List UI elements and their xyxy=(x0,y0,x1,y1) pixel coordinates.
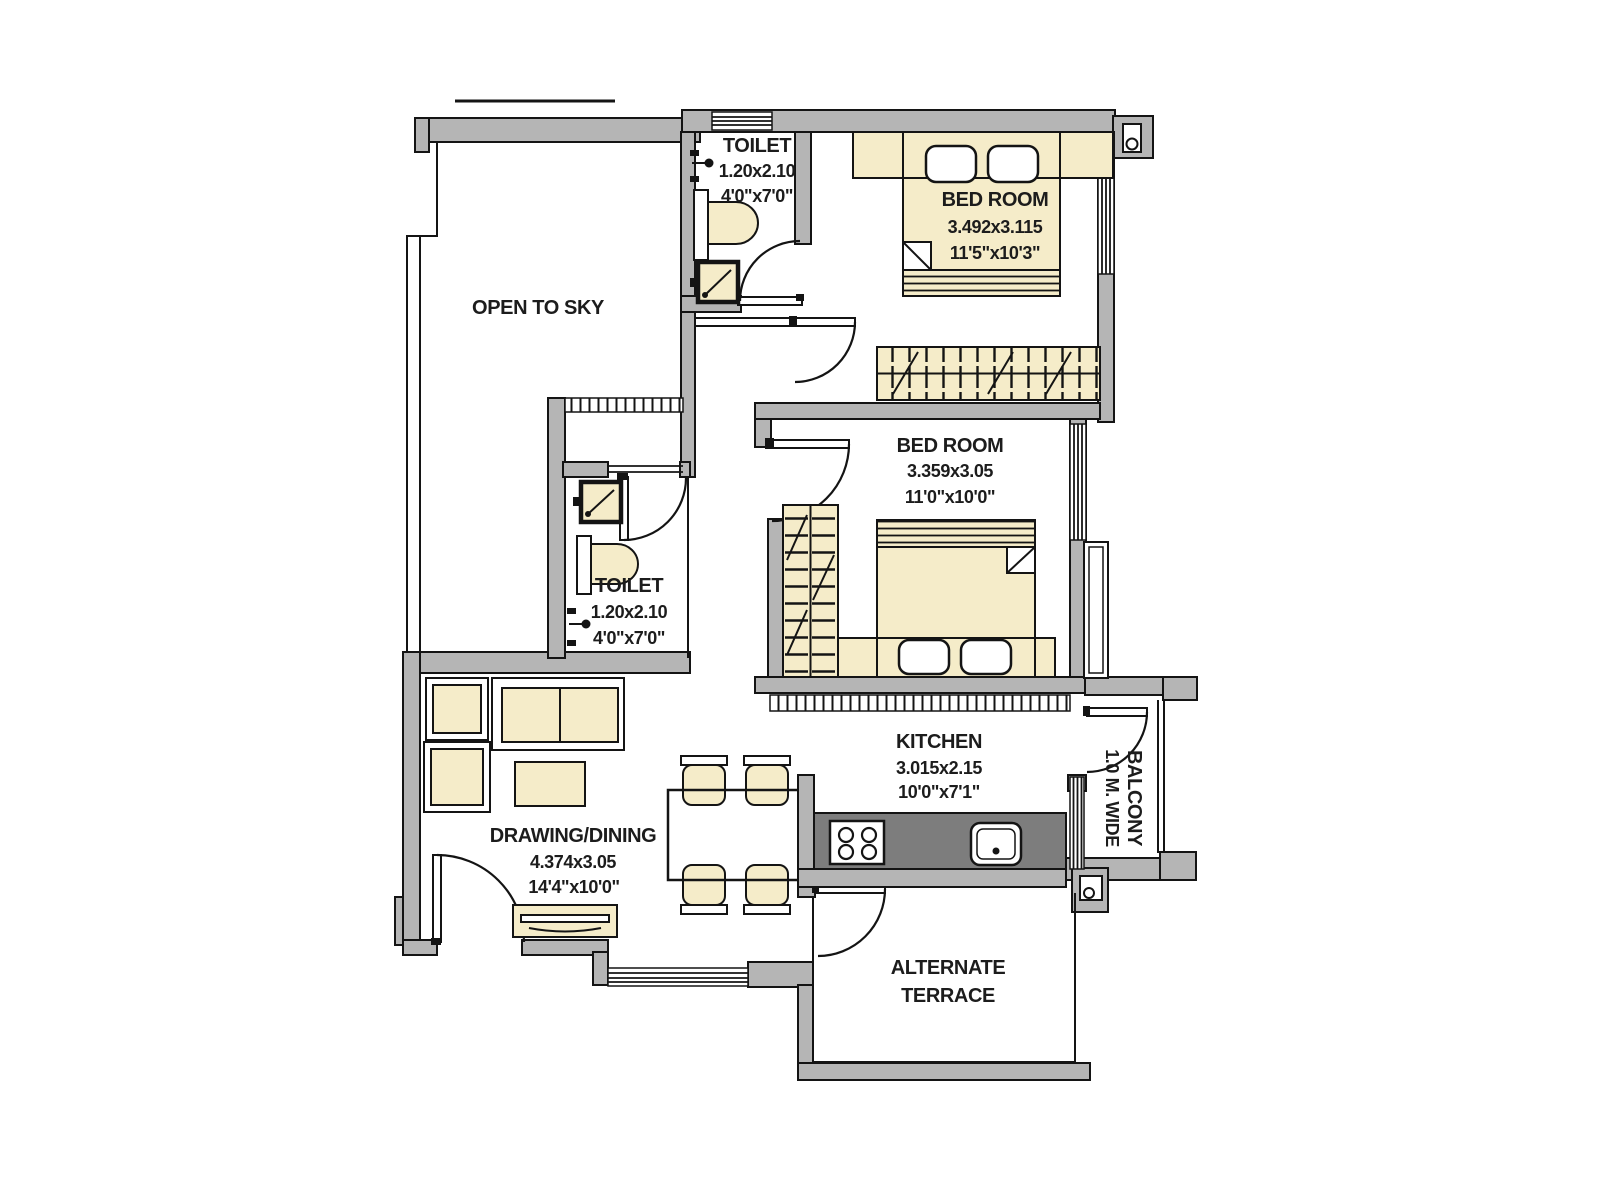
bedroom2-size-ft: 11'0"x10'0" xyxy=(905,487,995,507)
dining-set xyxy=(668,756,800,914)
floor-plan-canvas: OPEN TO SKY TOILET 1.20x2.10 4'0"x7'0" B… xyxy=(0,0,1600,1200)
drawing-dining-label: DRAWING/DINING xyxy=(490,825,657,847)
balcony-size: 1.0 M. WIDE xyxy=(1102,749,1122,847)
drawing-dining-size-ft: 14'4"x10'0" xyxy=(528,877,619,897)
toilet2-size-ft: 4'0"x7'0" xyxy=(593,628,665,648)
bedroom2-furniture xyxy=(783,505,1055,677)
bedroom2-size-m: 3.359x3.05 xyxy=(907,461,993,481)
dining-table xyxy=(668,790,800,880)
terrace-label-line1: ALTERNATE xyxy=(891,957,1006,979)
bedroom2-window xyxy=(1070,424,1086,540)
wardrobe xyxy=(783,505,838,677)
open-to-sky-label: OPEN TO SKY xyxy=(472,297,605,319)
duct-shaft xyxy=(1084,542,1108,678)
toilet2-size-m: 1.20x2.10 xyxy=(591,602,668,622)
toilet1-label: TOILET xyxy=(723,135,792,157)
coffee-table xyxy=(515,762,585,806)
kitchen-platform-grill xyxy=(770,695,1070,711)
living-furniture xyxy=(424,678,800,937)
shower-area xyxy=(690,262,738,302)
bedroom1-door xyxy=(789,316,855,382)
double-bed xyxy=(833,520,1055,677)
bedroom1-label: BED ROOM xyxy=(942,189,1049,211)
kitchen-size-ft: 10'0"x7'1" xyxy=(898,782,980,802)
shower-area xyxy=(573,482,621,522)
terrace-door xyxy=(812,883,885,956)
toilet1-size-m: 1.20x2.10 xyxy=(719,161,796,181)
kitchen-label: KITCHEN xyxy=(896,731,982,753)
terrace-drain xyxy=(1080,876,1102,900)
kitchen-window xyxy=(1070,777,1084,869)
toilet2-label: TOILET xyxy=(595,575,664,597)
double-bed xyxy=(853,132,1113,296)
floor-plan-page: OPEN TO SKY TOILET 1.20x2.10 4'0"x7'0" B… xyxy=(0,0,1600,1200)
pillow xyxy=(988,146,1038,182)
console-table xyxy=(513,905,617,937)
armchair xyxy=(426,678,488,740)
terrace-label-line2: TERRACE xyxy=(901,985,995,1007)
wash-basin-taps xyxy=(567,608,591,646)
drawing-dining-size-m: 4.374x3.05 xyxy=(530,852,616,872)
toilet2-door xyxy=(617,473,686,540)
balcony-label: BALCONY xyxy=(1123,750,1145,847)
bedroom1-size-m: 3.492x3.115 xyxy=(948,217,1043,237)
pillow xyxy=(899,640,949,674)
open-to-sky-vent-grill xyxy=(565,398,683,412)
pillow xyxy=(961,640,1011,674)
wardrobe xyxy=(877,347,1100,400)
armchair xyxy=(424,742,490,812)
toilet1-size-ft: 4'0"x7'0" xyxy=(721,186,793,206)
main-entrance-door xyxy=(431,855,524,945)
geyser-unit xyxy=(1123,124,1141,152)
stove-hob xyxy=(830,821,884,864)
toilet1-window xyxy=(712,112,772,130)
drawing-window xyxy=(608,968,748,986)
bedroom2-label: BED ROOM xyxy=(897,435,1004,457)
kitchen-size-m: 3.015x2.15 xyxy=(896,758,982,778)
toilet1-door xyxy=(738,241,804,305)
pillow xyxy=(926,146,976,182)
bedroom1-size-ft: 11'5"x10'3" xyxy=(950,243,1040,263)
sofa-two-seater xyxy=(492,678,624,750)
kitchen-sink xyxy=(971,823,1021,865)
